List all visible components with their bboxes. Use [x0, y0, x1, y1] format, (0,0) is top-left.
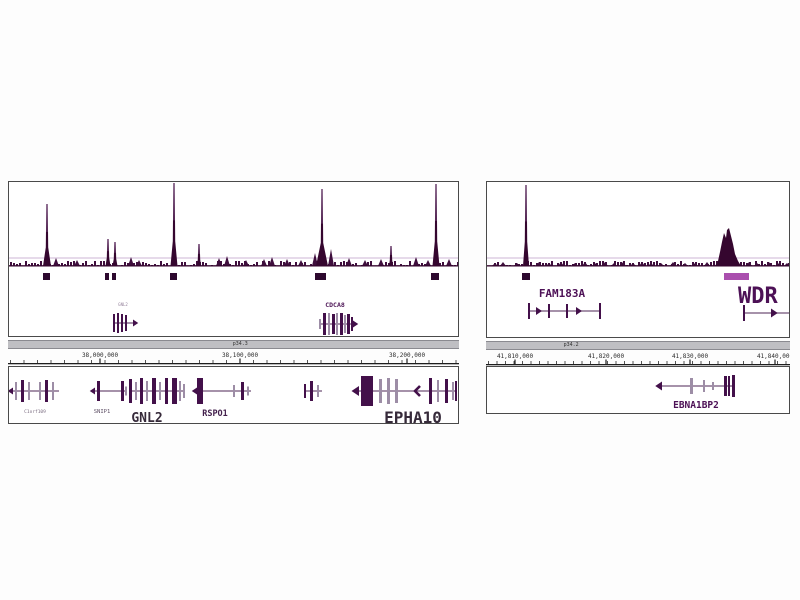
right-coordinate-axis: 41,810,00041,820,00041,830,00041,840,000	[486, 350, 790, 366]
strand-arrow-icon	[9, 388, 13, 395]
peak-call-box	[431, 273, 439, 280]
gene-WDR[interactable]: WDR	[738, 284, 790, 321]
genes-svg: C1orf109SNIP1GNL2RSPO1EPHA10	[9, 367, 459, 424]
gene-label-SNIP1: SNIP1	[94, 409, 111, 415]
gene-SNIP1[interactable]: SNIP1	[90, 381, 127, 415]
strand-arrow-icon	[536, 307, 542, 315]
peak-call-box	[724, 273, 749, 280]
gene-EBNA1BP2[interactable]: EBNA1BP2	[655, 375, 735, 411]
left-signal-track[interactable]: GNL2CDCA8	[8, 181, 459, 337]
gene-FAM183A[interactable]: FAM183A	[528, 287, 601, 319]
axis-svg: 41,810,00041,820,00041,830,00041,840,000	[486, 350, 790, 366]
gene-label-C1orf109: C1orf109	[24, 409, 46, 415]
left-ideogram[interactable]: p34.3	[8, 340, 459, 349]
peak-call-box	[315, 273, 326, 280]
gene-GNL2[interactable]: GNL2	[113, 302, 138, 333]
gene-label-GNL2: GNL2	[118, 302, 128, 307]
gene-label-FAM183A: FAM183A	[539, 287, 586, 300]
strand-arrow-icon	[353, 321, 358, 328]
right-ideogram-band-label: p34.2	[564, 342, 579, 349]
right-signal-track[interactable]: FAM183AWDR	[486, 181, 790, 338]
gene-GNL2[interactable]: GNL2	[129, 378, 185, 424]
peak-call-box	[170, 273, 177, 280]
left-coordinate-axis: 38,000,00038,100,00038,200,000	[8, 349, 459, 365]
peak-call-box	[522, 273, 530, 280]
genes-svg: EBNA1BP2	[487, 367, 790, 414]
strand-arrow-icon	[352, 386, 360, 396]
left-ideogram-band-label: p34.3	[233, 341, 248, 348]
gene-label-CDCA8: CDCA8	[325, 301, 345, 309]
gene-label-GNL2: GNL2	[131, 411, 162, 424]
axis-label: 38,000,000	[82, 352, 119, 359]
strand-arrow-icon	[771, 309, 778, 318]
axis-label: 41,840,000	[757, 353, 790, 360]
gene-label-EBNA1BP2: EBNA1BP2	[673, 400, 719, 411]
gene-C1orf109[interactable]: C1orf109	[9, 380, 59, 415]
left-gene-track: C1orf109SNIP1GNL2RSPO1EPHA10	[8, 366, 459, 424]
strand-arrow-icon	[655, 382, 662, 391]
strand-arrow-icon	[90, 388, 95, 395]
gene-CDCA8[interactable]: CDCA8	[319, 301, 358, 335]
axis-svg: 38,000,00038,100,00038,200,000	[8, 349, 459, 365]
genome-browser-figure: GNL2CDCA8 p34.3 38,000,00038,100,00038,2…	[0, 0, 800, 600]
axis-label: 38,200,000	[389, 352, 426, 359]
signal-svg: FAM183AWDR	[487, 182, 790, 338]
gene-unnamed[interactable]	[304, 381, 322, 401]
peak-call-box	[43, 273, 50, 280]
axis-label: 41,830,000	[672, 353, 709, 360]
strand-arrow-icon	[192, 388, 197, 395]
peak-call-box	[112, 273, 116, 280]
gene-label-WDR: WDR	[738, 284, 778, 309]
right-panel: FAM183AWDR p34.2 41,810,00041,820,00041,…	[486, 181, 790, 416]
gene-EPHA10[interactable]: EPHA10	[352, 376, 458, 424]
axis-label: 41,820,000	[588, 353, 625, 360]
signal-svg: GNL2CDCA8	[9, 182, 459, 337]
axis-label: 41,810,000	[497, 353, 534, 360]
gene-label-EPHA10: EPHA10	[384, 408, 442, 424]
gene-label-RSPO1: RSPO1	[202, 409, 228, 419]
strand-arrow-icon	[133, 320, 138, 327]
gene-RSPO1[interactable]: RSPO1	[192, 378, 251, 419]
right-ideogram[interactable]: p34.2	[486, 341, 790, 350]
signal-peak-broad	[715, 228, 741, 266]
axis-label: 38,100,000	[222, 352, 259, 359]
left-panel: GNL2CDCA8 p34.3 38,000,00038,100,00038,2…	[8, 181, 459, 426]
peak-call-box	[105, 273, 109, 280]
right-gene-track: EBNA1BP2	[486, 366, 790, 414]
strand-arrow-icon	[576, 307, 582, 315]
